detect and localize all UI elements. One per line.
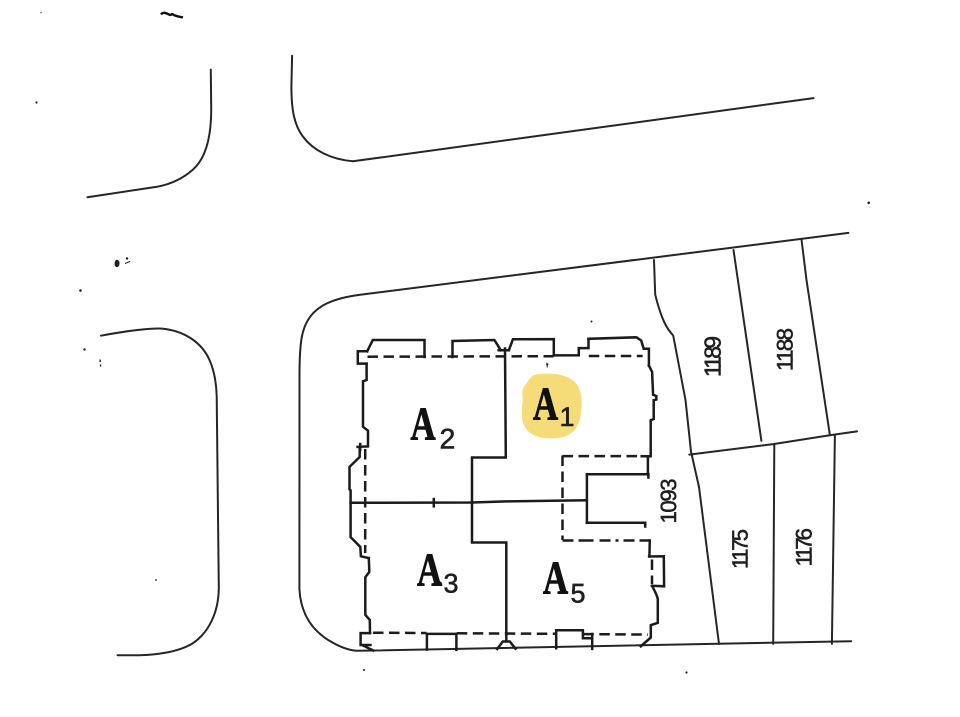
svg-text:3: 3: [444, 569, 459, 599]
svg-text:A: A: [417, 545, 442, 597]
svg-text:A: A: [411, 398, 436, 450]
svg-text:1189: 1189: [700, 336, 726, 377]
svg-text:A: A: [533, 379, 558, 431]
svg-text:5: 5: [571, 578, 586, 608]
svg-text:1093: 1093: [656, 479, 681, 524]
svg-text:1175: 1175: [728, 529, 753, 569]
svg-text:A: A: [543, 553, 568, 605]
svg-text:2: 2: [440, 424, 456, 456]
svg-text:1188: 1188: [773, 328, 798, 371]
svg-text:1176: 1176: [792, 528, 817, 567]
svg-text:1: 1: [560, 402, 575, 432]
